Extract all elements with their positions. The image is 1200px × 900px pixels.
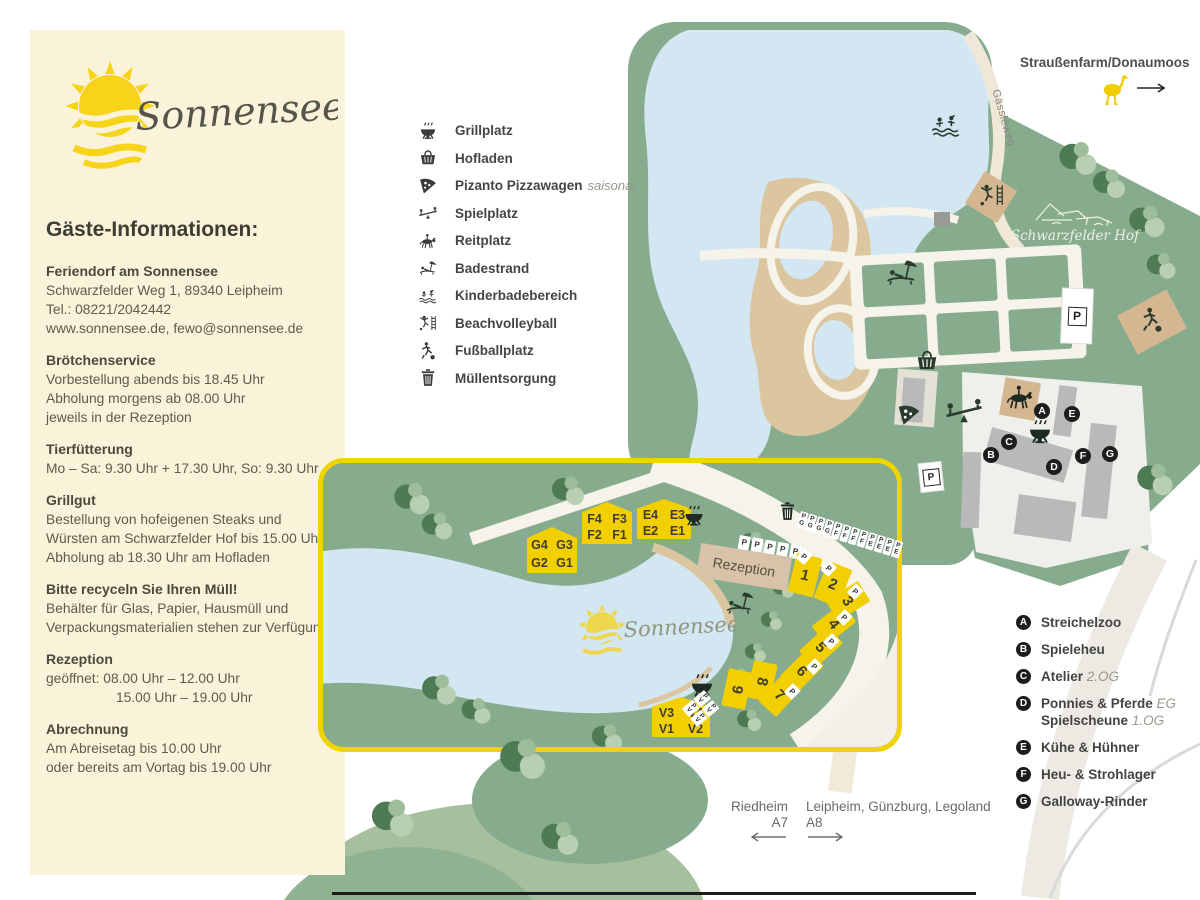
marker-b-key: B bbox=[1016, 642, 1031, 657]
section-rezeption: Rezeption geöffnet: 08.00 Uhr – 12.00 Uh… bbox=[46, 650, 336, 707]
parking-sign-small: P bbox=[919, 462, 944, 492]
direction-leipheim: Leipheim, Günzburg, Legoland A8 bbox=[806, 799, 1026, 847]
page-title: Gäste-Informationen: bbox=[46, 218, 336, 242]
direction-destination: Riedheim bbox=[700, 799, 788, 815]
map-marker-g: G bbox=[1102, 446, 1118, 462]
map-marker-e: E bbox=[1064, 406, 1080, 422]
legend-row-fussballplatz: Fußballplatz bbox=[418, 337, 635, 365]
pizza-icon bbox=[418, 176, 438, 196]
volleyball-icon bbox=[418, 313, 438, 333]
info-sidebar: Sonnensee Gäste-Informationen: Feriendor… bbox=[30, 30, 345, 875]
section-address: Feriendorf am Sonnensee Schwarzfelder We… bbox=[46, 262, 336, 338]
marker-f-key: F bbox=[1016, 767, 1031, 782]
map-marker-f: F bbox=[1075, 448, 1091, 464]
sonnensee-logo: Sonnensee bbox=[48, 58, 338, 178]
farm-legend: A Streichelzoo B Spieleheu C Atelier 2.O… bbox=[1016, 614, 1200, 820]
basket-icon bbox=[418, 148, 438, 168]
kids-water-icon bbox=[418, 286, 438, 306]
soccer-icon bbox=[1138, 306, 1166, 334]
direction-riedheim: Riedheim A7 bbox=[700, 799, 788, 847]
farm-legend-row-e: E Kühe & Hühner bbox=[1016, 739, 1200, 756]
ostrich-icon bbox=[1096, 74, 1136, 106]
seesaw-icon bbox=[418, 203, 438, 223]
farm-legend-row-f: F Heu- & Strohlager bbox=[1016, 766, 1200, 783]
arrow-left-icon bbox=[748, 831, 788, 843]
trash-icon bbox=[777, 501, 798, 522]
marker-e-key: E bbox=[1016, 740, 1031, 755]
legend-row-hofladen: Hofladen bbox=[418, 145, 635, 173]
guest-information: Gäste-Informationen: Feriendorf am Sonne… bbox=[46, 218, 336, 790]
legend-row-pizzawagen: Pizanto Pizzawagen saisonal bbox=[418, 172, 635, 200]
volleyball-icon bbox=[978, 182, 1006, 208]
legend-row-kinderbadebereich: Kinderbadebereich bbox=[418, 282, 635, 310]
arrow-right-icon bbox=[806, 831, 846, 843]
marker-c-key: C bbox=[1016, 669, 1031, 684]
direction-destination: Leipheim, Günzburg, Legoland bbox=[806, 799, 1026, 815]
legend-row-reitplatz: Reitplatz bbox=[418, 227, 635, 255]
lounger-icon bbox=[724, 590, 756, 616]
schwarzfelder-hof-label: Schwarzfelder Hof bbox=[1000, 228, 1150, 244]
legend-row-grillplatz: Grillplatz bbox=[418, 117, 635, 145]
legend-row-beachvolleyball: Beachvolleyball bbox=[418, 310, 635, 338]
offsite-arrow-icon bbox=[1134, 80, 1170, 96]
straussenfarm-label: Straußenfarm/Donaumoos bbox=[1020, 55, 1200, 70]
legend-row-spielplatz: Spielplatz bbox=[418, 200, 635, 228]
grill-icon bbox=[418, 121, 438, 141]
parking-sign-large: P bbox=[1061, 288, 1093, 343]
inset-logo-script-text: Sonnensee bbox=[623, 612, 736, 642]
site-map-page: Sonnensee Gäste-Informationen: Feriendor… bbox=[0, 0, 1200, 900]
map-marker-c: C bbox=[1001, 434, 1017, 450]
page-bottom-edge bbox=[332, 892, 976, 895]
grill-icon bbox=[1026, 418, 1054, 446]
map-marker-a: A bbox=[1034, 403, 1050, 419]
farm-legend-row-d: D Ponnies & Pferde EG Spielscheune 1.OG bbox=[1016, 695, 1200, 729]
section-tierfuetterung: Tierfütterung Mo – Sa: 9.30 Uhr + 17.30 … bbox=[46, 440, 336, 478]
trash-icon bbox=[418, 368, 438, 388]
grill-icon bbox=[682, 504, 706, 528]
logo-script-text: Sonnensee bbox=[134, 84, 338, 139]
section-grillgut: Grillgut Bestellung von hofeigenen Steak… bbox=[46, 491, 336, 567]
seesaw-icon bbox=[944, 396, 984, 426]
lounger-icon bbox=[418, 258, 438, 278]
marker-d-key: D bbox=[1016, 696, 1031, 711]
marker-a-key: A bbox=[1016, 615, 1031, 630]
legend-row-badestrand: Badestrand bbox=[418, 255, 635, 283]
map-icon-legend: Grillplatz Hofladen Pizanto Pizzawagen s… bbox=[418, 117, 635, 392]
farm-legend-row-c: C Atelier 2.OG bbox=[1016, 668, 1200, 685]
farm-legend-row-a: A Streichelzoo bbox=[1016, 614, 1200, 631]
kids-water-icon bbox=[930, 112, 962, 138]
soccer-icon bbox=[418, 341, 438, 361]
legend-row-muellentsorgung: Müllentsorgung bbox=[418, 365, 635, 393]
direction-road: A7 bbox=[700, 815, 788, 831]
farm-legend-row-g: G Galloway-Rinder bbox=[1016, 793, 1200, 810]
inset-sonnensee-logo: Sonnensee bbox=[576, 592, 736, 664]
section-recycling: Bitte recyceln Sie Ihren Müll! Behälter … bbox=[46, 580, 336, 637]
pizza-icon bbox=[896, 402, 922, 428]
farm-legend-row-b: B Spieleheu bbox=[1016, 641, 1200, 658]
horse-icon bbox=[1004, 383, 1036, 411]
basket-icon bbox=[914, 348, 940, 374]
horse-icon bbox=[418, 231, 438, 251]
map-marker-d: D bbox=[1046, 459, 1062, 475]
tree-icon bbox=[496, 734, 552, 790]
direction-road: A8 bbox=[806, 815, 1026, 831]
lounger-icon bbox=[884, 258, 920, 287]
map-marker-b: B bbox=[983, 447, 999, 463]
farm-sketch bbox=[1028, 194, 1136, 230]
section-broetchenservice: Brötchenservice Vorbestellung abends bis… bbox=[46, 351, 336, 427]
section-abrechnung: Abrechnung Am Abreisetag bis 10.00 Uhr o… bbox=[46, 720, 336, 777]
